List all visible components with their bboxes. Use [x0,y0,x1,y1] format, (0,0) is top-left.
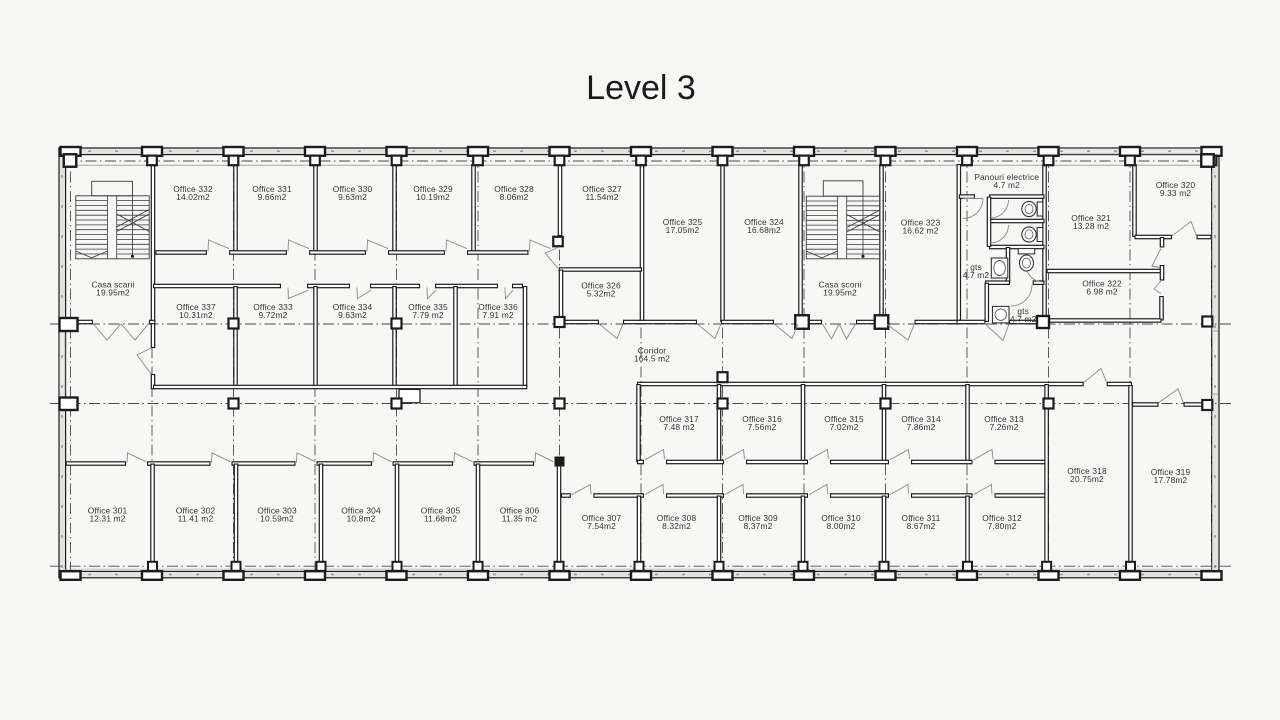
svg-text:7.56m2: 7.56m2 [748,422,777,432]
svg-text:10.31m2: 10.31m2 [179,310,213,320]
svg-text:4.7 m2: 4.7 m2 [1010,314,1037,324]
svg-text:8.37m2: 8.37m2 [744,521,773,531]
svg-text:7.80m2: 7.80m2 [988,521,1017,531]
svg-text:16.62 m2: 16.62 m2 [902,226,938,236]
svg-text:7.48 m2: 7.48 m2 [663,422,695,432]
svg-text:7.26m2: 7.26m2 [990,422,1019,432]
svg-text:12.31 m2: 12.31 m2 [89,513,125,523]
svg-text:11.41 m2: 11.41 m2 [178,513,214,523]
svg-text:8.06m2: 8.06m2 [500,192,529,202]
svg-text:9.72m2: 9.72m2 [259,310,288,320]
svg-text:10.59m2: 10.59m2 [260,513,294,523]
svg-text:8.67m2: 8.67m2 [907,521,936,531]
svg-text:16.68m2: 16.68m2 [747,225,781,235]
svg-text:20.75m2: 20.75m2 [1070,474,1104,484]
svg-text:11.68m2: 11.68m2 [424,513,457,523]
svg-text:14.02m2: 14.02m2 [176,192,210,202]
svg-text:7.86m2: 7.86m2 [907,422,936,432]
svg-text:19.95m2: 19.95m2 [96,288,130,298]
svg-text:17.05m2: 17.05m2 [666,225,700,235]
svg-text:6.98 m2: 6.98 m2 [1086,287,1118,297]
svg-text:11.54m2: 11.54m2 [585,192,618,202]
svg-text:4.7 m2: 4.7 m2 [963,270,990,280]
svg-text:7.02m2: 7.02m2 [830,422,859,432]
svg-text:9.33 m2: 9.33 m2 [1160,188,1192,198]
svg-text:8.00m2: 8.00m2 [827,521,856,531]
svg-text:9.63m2: 9.63m2 [338,192,367,202]
svg-text:10.19m2: 10.19m2 [416,192,450,202]
svg-text:7.91 m2: 7.91 m2 [482,310,514,320]
svg-text:Level 3: Level 3 [586,69,696,107]
svg-text:10.8m2: 10.8m2 [347,513,376,523]
svg-text:9.66m2: 9.66m2 [258,192,287,202]
svg-text:11.35 m2: 11.35 m2 [502,513,538,523]
svg-text:7.54m2: 7.54m2 [587,521,616,531]
svg-text:9.63m2: 9.63m2 [338,310,367,320]
svg-text:7.79 m2: 7.79 m2 [412,310,444,320]
svg-text:4.7 m2: 4.7 m2 [993,180,1020,190]
svg-text:164.5 m2: 164.5 m2 [634,354,670,364]
svg-text:5.32m2: 5.32m2 [587,289,616,299]
svg-text:17.78m2: 17.78m2 [1154,475,1188,485]
svg-text:8.32m2: 8.32m2 [662,521,691,531]
svg-text:13.28 m2: 13.28 m2 [1073,221,1109,231]
svg-text:19.95m2: 19.95m2 [823,288,857,298]
